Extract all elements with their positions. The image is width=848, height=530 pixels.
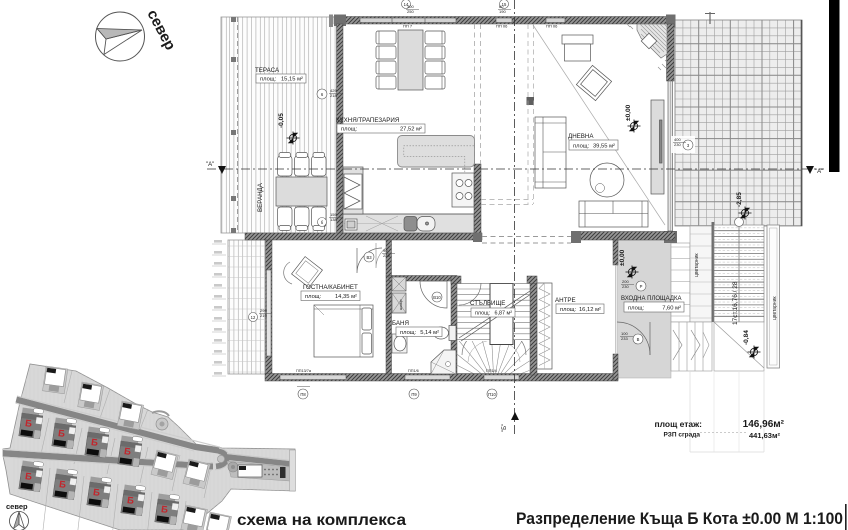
svg-text:ГОСТНА/КАБИНЕТ: ГОСТНА/КАБИНЕТ — [303, 284, 358, 291]
svg-text:ПП1/6: ПП1/6 — [408, 369, 419, 373]
svg-text:39,55 м²: 39,55 м² — [593, 144, 615, 150]
svg-text:БАНЯ: БАНЯ — [392, 320, 409, 327]
svg-text:площ:: площ: — [260, 77, 277, 83]
svg-text:площ етаж:: площ етаж: — [654, 419, 702, 429]
svg-text:Разпределение Къща Б Кота ±0.0: Разпределение Къща Б Кота ±0.00 М 1:100 — [516, 510, 843, 528]
svg-text:схема на комплекса: схема на комплекса — [237, 512, 406, 529]
svg-text:14,35 м²: 14,35 м² — [335, 294, 357, 300]
svg-text:площ:: площ: — [341, 127, 358, 133]
svg-text:Р: Р — [640, 284, 643, 289]
svg-text:"Б": "Б" — [502, 424, 508, 432]
svg-text:В: В — [637, 337, 640, 342]
svg-text:РЗП сграда: РЗП сграда — [664, 432, 701, 439]
svg-text:ПП1/4: ПП1/4 — [486, 369, 497, 373]
svg-text:СТЪЛБИЩЕ: СТЪЛБИЩЕ — [470, 300, 505, 307]
svg-text:площ:: площ: — [628, 306, 645, 312]
svg-text:П9: П9 — [411, 392, 417, 397]
svg-text:площ:: площ: — [573, 144, 590, 150]
svg-text:В10: В10 — [433, 295, 441, 300]
svg-text:17ст.16,76 / 28: 17ст.16,76 / 28 — [732, 281, 739, 325]
svg-text:площ:: площ: — [400, 330, 417, 336]
svg-text:П10: П10 — [488, 392, 496, 397]
svg-text:27,52 м²: 27,52 м² — [400, 127, 422, 133]
svg-text:площ:: площ: — [560, 307, 577, 313]
svg-text:площ:: площ: — [475, 311, 490, 317]
svg-text:север: север — [6, 502, 28, 511]
svg-text:КУХНЯ/ТРАПЕЗАРИЯ: КУХНЯ/ТРАПЕЗАРИЯ — [336, 117, 399, 124]
svg-text:12: 12 — [251, 315, 256, 320]
svg-text:АНТРЕ: АНТРЕ — [555, 297, 576, 304]
svg-text:146,96м²: 146,96м² — [743, 419, 785, 430]
svg-text:П8: П8 — [300, 392, 306, 397]
svg-text:±0,00: ±0,00 — [625, 104, 632, 121]
svg-text:ПП 06: ПП 06 — [496, 24, 508, 29]
svg-text:-0,05: -0,05 — [278, 113, 285, 128]
svg-text:441,63м²: 441,63м² — [749, 431, 780, 440]
svg-text:ПП 7: ПП 7 — [403, 24, 413, 29]
svg-text:-0,84: -0,84 — [743, 330, 750, 345]
svg-text:±0,00: ±0,00 — [619, 249, 626, 266]
svg-text:"А": "А" — [206, 162, 214, 168]
svg-text:6,87 м²: 6,87 м² — [495, 311, 513, 317]
svg-text:ПП13/7а: ПП13/7а — [296, 369, 312, 373]
svg-text:ВЕРАНДА: ВЕРАНДА — [257, 182, 264, 212]
svg-text:В3: В3 — [366, 255, 372, 260]
svg-text:ВХОДНА ПЛОЩАДКА: ВХОДНА ПЛОЩАДКА — [621, 296, 681, 302]
svg-text:"А": "А" — [815, 169, 823, 175]
svg-text:ТЕРАСА: ТЕРАСА — [255, 67, 280, 74]
svg-text:шкаф: шкаф — [398, 299, 403, 310]
svg-text:-2,85: -2,85 — [736, 192, 743, 207]
svg-text:цветарник: цветарник — [772, 296, 778, 320]
svg-text:цветарник: цветарник — [694, 253, 700, 277]
svg-text:ДНЕВНА: ДНЕВНА — [568, 133, 594, 140]
svg-text:ПП 06: ПП 06 — [546, 24, 558, 29]
svg-text:5,14 м²: 5,14 м² — [420, 330, 439, 336]
svg-text:16,12 м²: 16,12 м² — [579, 307, 601, 313]
svg-text:7,60 м²: 7,60 м² — [662, 306, 681, 312]
svg-text:15,15 м²: 15,15 м² — [281, 77, 303, 83]
svg-text:площ:: площ: — [305, 294, 322, 300]
